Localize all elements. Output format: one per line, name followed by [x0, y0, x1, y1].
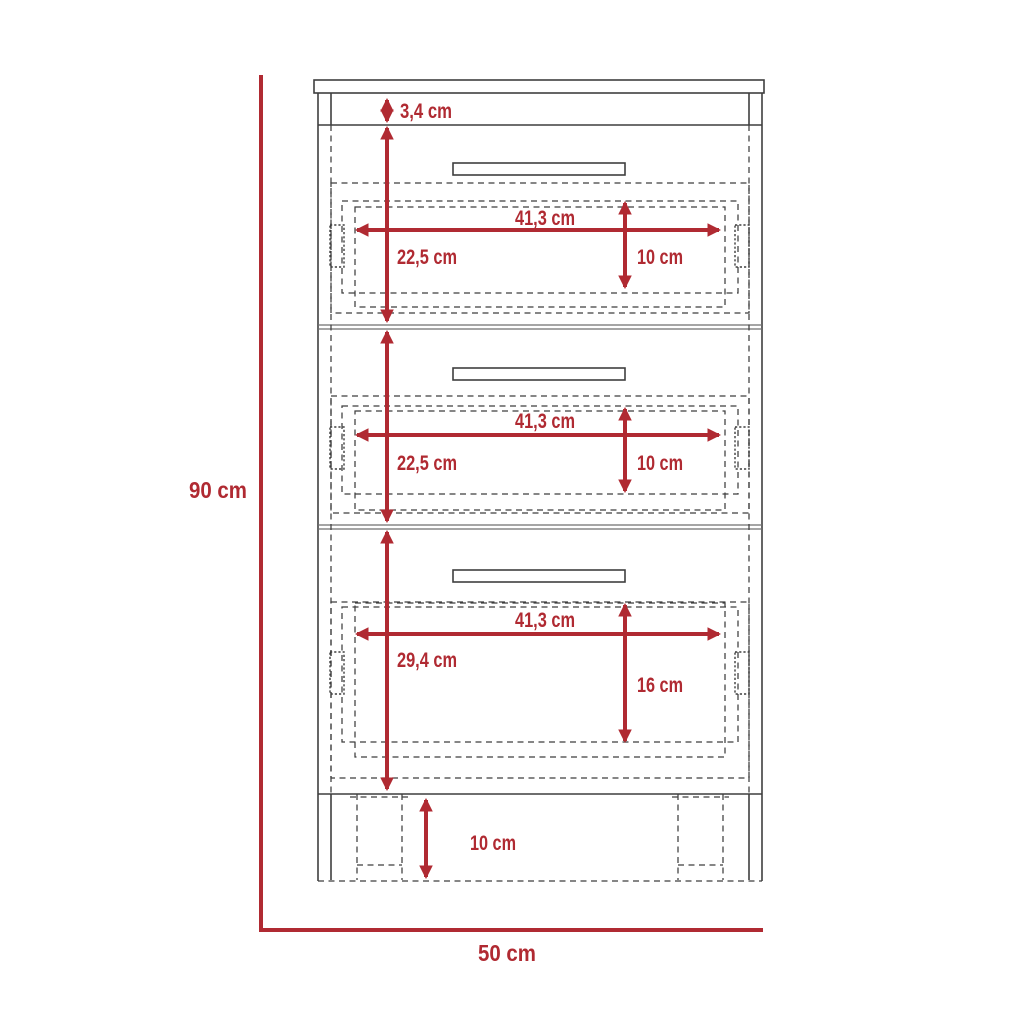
separator-1	[318, 325, 762, 329]
overall-width-label: 50 cm	[478, 940, 536, 966]
right-leg-hidden-outline	[672, 794, 729, 880]
drawer-2-right-slide	[735, 427, 749, 469]
drawer-3-section-height-label: 29,4 cm	[397, 649, 457, 672]
drawer-2-handle	[453, 368, 625, 380]
cabinet-carcass	[314, 80, 764, 881]
overall-height-dimension-line	[259, 75, 263, 932]
drawer-3-handle	[453, 570, 625, 582]
drawer-3-width-label: 41,3 cm	[515, 609, 575, 632]
drawer-2: 41,3 cm 22,5 cm 10 cm	[330, 332, 749, 521]
top-panel	[314, 80, 764, 93]
drawer-2-width-label: 41,3 cm	[515, 410, 575, 433]
drawer-1-width-label: 41,3 cm	[515, 207, 575, 230]
base-height-label: 10 cm	[470, 832, 516, 855]
separator-2	[318, 525, 762, 529]
drawer-3-box-height-label: 16 cm	[637, 674, 683, 697]
drawer-1-right-slide	[735, 225, 749, 267]
overall-height-label: 90 cm	[189, 477, 247, 503]
drawer-1-section-height-label: 22,5 cm	[397, 246, 457, 269]
drawer-1: 41,3 cm 22,5 cm 10 cm	[330, 128, 749, 321]
overall-width-dimension-line	[259, 928, 763, 932]
drawer-2-section-height-label: 22,5 cm	[397, 452, 457, 475]
drawer-3-right-slide	[735, 652, 749, 694]
drawer-3: 41,3 cm 29,4 cm 16 cm	[330, 532, 749, 789]
drawer-1-handle	[453, 163, 625, 175]
top-thickness-dimension: 3,4 cm	[387, 100, 452, 123]
diagram-svg: 90 cm 50 cm 3,4 cm 41,3 cm 22,5 cm 10 cm	[0, 0, 1024, 1024]
dresser-dimension-diagram: 90 cm 50 cm 3,4 cm 41,3 cm 22,5 cm 10 cm	[0, 0, 1024, 1024]
left-leg-hidden-outline	[350, 794, 408, 880]
drawer-1-box-height-label: 10 cm	[637, 246, 683, 269]
top-thickness-label: 3,4 cm	[400, 100, 452, 123]
base-section: 10 cm	[350, 794, 729, 880]
drawer-2-box-height-label: 10 cm	[637, 452, 683, 475]
